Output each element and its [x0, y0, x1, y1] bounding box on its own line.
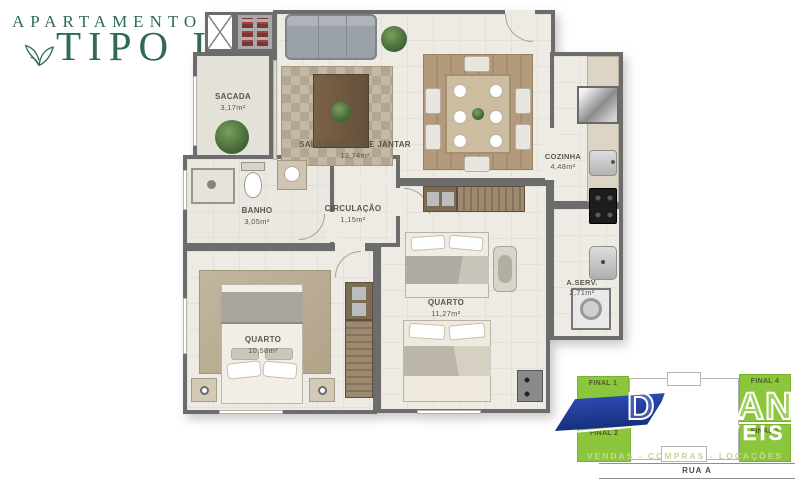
- chair: [515, 124, 531, 150]
- centerpiece: [472, 108, 484, 120]
- label-quarto1: QUARTO10,58m²: [213, 335, 313, 356]
- faucet-dot: [611, 160, 615, 164]
- page: APARTAMENTO TIPO I: [0, 0, 800, 486]
- street-line-bottom: [599, 478, 795, 479]
- blanket-q2a: [405, 256, 489, 284]
- bed-blanket: [221, 292, 303, 324]
- grill: [235, 12, 275, 52]
- chair: [425, 88, 441, 114]
- plate: [453, 84, 467, 98]
- cabinet-door: [427, 192, 439, 206]
- toilet-bowl: [244, 172, 262, 198]
- label-sala: SALA DE ESTAR E JANTAR13,74m²: [275, 140, 435, 161]
- plate: [489, 84, 503, 98]
- label-banho: BANHO3,05m²: [215, 206, 299, 227]
- window-quarto1-bottom: [219, 410, 283, 414]
- window-banho: [183, 170, 187, 210]
- street-line-top: [599, 463, 795, 464]
- grill-skewers-left: [242, 18, 253, 46]
- lamp: [200, 386, 209, 395]
- label-sacada: SACADA3,17m²: [191, 92, 275, 113]
- pillow: [409, 323, 446, 340]
- cabinet-door: [442, 192, 454, 206]
- shower-head: [207, 180, 216, 189]
- keyplan-notch-top: [667, 372, 701, 386]
- table-plant: [331, 102, 351, 122]
- chair: [464, 56, 490, 72]
- plant-pot: [381, 26, 407, 52]
- washer-door: [580, 298, 602, 320]
- desk: [517, 370, 543, 402]
- tub-dot: [601, 260, 605, 264]
- leaf-icon: [22, 38, 56, 68]
- room-circulacao: [330, 155, 400, 247]
- nightstand-right: [309, 378, 335, 402]
- bathroom-sink: [284, 166, 300, 182]
- label-aserv: A.SERV.2,71m²: [553, 278, 611, 298]
- pillow: [262, 361, 297, 380]
- lamp: [318, 386, 327, 395]
- chair: [515, 88, 531, 114]
- label-quarto2: QUARTO11,27m²: [401, 298, 491, 319]
- plate: [489, 110, 503, 124]
- wardrobe-q2: [457, 186, 525, 212]
- lounge-cushion: [498, 255, 512, 283]
- kitchen-counter: [587, 56, 619, 202]
- wardrobe-cabinet-q2: [423, 186, 457, 212]
- street-label: RUA A: [599, 466, 795, 475]
- floor-plan: SACADA3,17m² SALA DE ESTAR E JANTAR13,74…: [183, 10, 625, 414]
- wardrobe-q1: [345, 320, 373, 398]
- label-cozinha: COZINHA4,48m²: [528, 152, 598, 172]
- label-circulacao: CIRCULAÇÃO1,15m²: [311, 204, 395, 225]
- toilet-tank: [241, 162, 265, 171]
- plate: [453, 110, 467, 124]
- fridge: [577, 86, 619, 124]
- plate: [453, 134, 467, 148]
- window-quarto2-bottom: [417, 410, 481, 414]
- nightstand-left: [191, 378, 217, 402]
- wardrobe-cabinet-q1: [345, 282, 373, 320]
- grill-skewers-right: [257, 18, 268, 46]
- chair: [464, 156, 490, 172]
- sofa: [285, 14, 377, 60]
- opening-sala-hall: [335, 174, 395, 186]
- window-quarto1-left: [183, 298, 187, 354]
- pillow: [411, 235, 446, 251]
- lounge-chair: [493, 246, 517, 292]
- pillow: [448, 322, 485, 340]
- cabinet-door: [352, 287, 366, 300]
- brand-type: IMÓVEIS: [677, 422, 786, 446]
- cabinet-door: [352, 303, 366, 316]
- cooktop: [589, 188, 617, 224]
- brand-tagline: VENDAS - COMPRAS - LOCAÇÕES: [573, 451, 797, 461]
- shaft-box: [205, 12, 235, 52]
- blanket-q2b: [403, 346, 491, 376]
- pillow: [448, 235, 483, 252]
- plate: [489, 134, 503, 148]
- brand-keyplan: FINAL 1 FINAL 4 FINAL 2 FINAL 3 ⌂ DARLAN…: [573, 370, 797, 482]
- balcony-plant: [215, 120, 249, 154]
